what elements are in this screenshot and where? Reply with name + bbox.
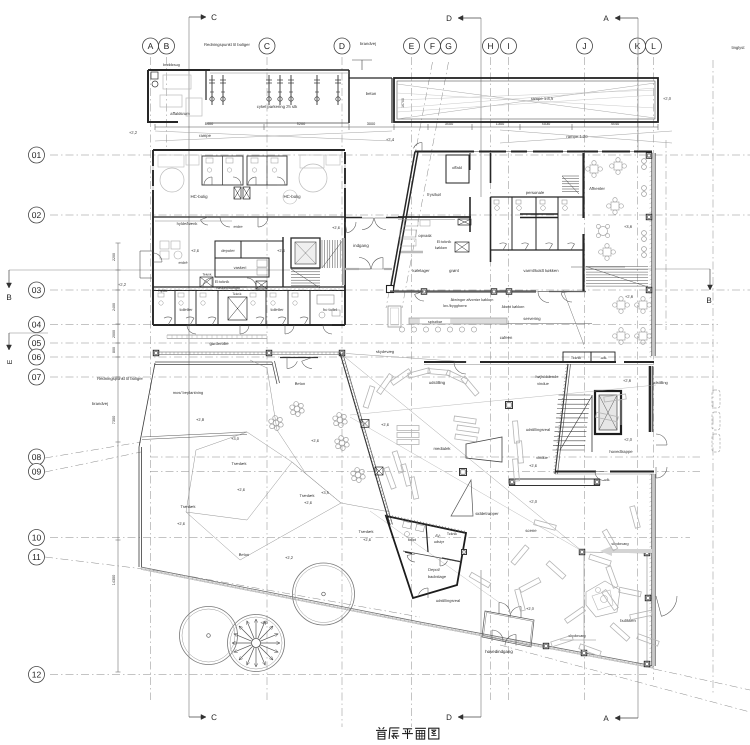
svg-text:E: E <box>409 41 415 51</box>
svg-text:hylde/bænk: hylde/bænk <box>177 221 198 226</box>
svg-text:Teknik: Teknik <box>571 356 581 360</box>
svg-text:udstillingsreal: udstillingsreal <box>436 598 460 603</box>
svg-text:5030: 5030 <box>542 122 550 126</box>
svg-text:skydevæg: skydevæg <box>568 634 585 638</box>
svg-text:Trædæk: Trædæk <box>359 529 374 534</box>
svg-text:frys/køl: frys/køl <box>427 192 441 197</box>
svg-text:Redningspunkt til boliger: Redningspunkt til boliger <box>204 42 250 47</box>
svg-text:Depot/: Depot/ <box>428 567 441 572</box>
svg-text:+2,2: +2,2 <box>129 130 138 135</box>
svg-text:entre: entre <box>233 224 243 229</box>
svg-text:cykel parkering 25 stk: cykel parkering 25 stk <box>257 104 298 109</box>
svg-text:02: 02 <box>32 210 42 220</box>
svg-text:Vaskeri/boliger: Vaskeri/boliger <box>216 286 242 290</box>
svg-text:03: 03 <box>32 285 42 295</box>
svg-text:grønt: grønt <box>449 268 460 273</box>
svg-text:+2,8: +2,8 <box>196 417 205 422</box>
svg-text:4540: 4540 <box>611 122 619 126</box>
svg-text:B: B <box>6 293 11 302</box>
svg-text:+2,0: +2,0 <box>663 96 672 101</box>
svg-text:10: 10 <box>32 533 42 543</box>
svg-text:14300: 14300 <box>112 575 116 586</box>
svg-text:garderobe: garderobe <box>209 341 229 346</box>
svg-text:backstage: backstage <box>428 574 447 579</box>
svg-text:+2,6: +2,6 <box>277 248 286 253</box>
svg-text:11: 11 <box>32 552 41 562</box>
svg-text:Beton: Beton <box>239 552 249 557</box>
svg-text:08: 08 <box>32 452 42 462</box>
svg-text:rampe 1:8,5: rampe 1:8,5 <box>531 96 554 101</box>
svg-text:+2,6: +2,6 <box>625 294 634 299</box>
svg-text:+2,2: +2,2 <box>118 282 127 287</box>
svg-text:C: C <box>264 41 270 51</box>
svg-text:D: D <box>446 14 452 23</box>
svg-text:offald: offald <box>452 165 462 170</box>
svg-text:+2,6: +2,6 <box>191 248 200 253</box>
svg-text:køkken: køkken <box>435 246 447 250</box>
svg-text:06: 06 <box>32 352 42 362</box>
svg-text:udstilling: udstilling <box>429 380 446 385</box>
svg-text:B: B <box>706 296 711 305</box>
svg-text:affaldsrum: affaldsrum <box>170 111 190 116</box>
svg-text:brandvej: brandvej <box>360 41 376 46</box>
svg-text:8400: 8400 <box>205 122 213 126</box>
svg-text:AV-: AV- <box>435 534 442 538</box>
svg-text:3500: 3500 <box>445 122 453 126</box>
svg-text:udstillingsreal: udstillingsreal <box>526 427 550 432</box>
svg-text:kølelager: kølelager <box>412 268 430 273</box>
svg-text:Teknik: Teknik <box>202 273 211 277</box>
svg-text:personale: personale <box>526 190 545 195</box>
svg-text:Trædæk: Trædæk <box>232 461 247 466</box>
svg-text:åbninger afventer køkken: åbninger afventer køkken <box>451 297 494 302</box>
svg-text:Trædæk: Trædæk <box>300 493 315 498</box>
svg-text:H: H <box>487 41 493 51</box>
svg-text:rampe: rampe <box>199 133 212 138</box>
svg-text:12: 12 <box>32 670 42 680</box>
svg-text:Afhenter: Afhenter <box>589 186 605 191</box>
svg-text:Teknik: Teknik <box>447 532 457 536</box>
svg-text:G: G <box>445 41 452 51</box>
svg-text:Trædæk: Trædæk <box>181 504 196 509</box>
svg-text:5200: 5200 <box>297 122 305 126</box>
svg-text:vaskeri: vaskeri <box>234 265 247 270</box>
svg-text:3000: 3000 <box>367 122 375 126</box>
svg-text:udstyr: udstyr <box>434 540 445 544</box>
svg-text:brandvej: brandvej <box>92 401 108 406</box>
svg-text:lev./byggherre: lev./byggherre <box>443 304 467 308</box>
svg-text:2400: 2400 <box>112 303 116 311</box>
svg-text:toiletter: toiletter <box>270 307 284 312</box>
svg-text:F: F <box>430 41 435 51</box>
svg-text:E: E <box>7 359 14 364</box>
svg-text:beton: beton <box>366 91 377 96</box>
svg-text:2200: 2200 <box>112 253 116 261</box>
svg-text:+2,6: +2,6 <box>311 438 320 443</box>
svg-text:04: 04 <box>32 320 42 330</box>
svg-text:+3,5: +3,5 <box>321 490 330 495</box>
svg-text:hc-toilet: hc-toilet <box>323 307 338 312</box>
svg-text:+2,6: +2,6 <box>332 225 341 230</box>
svg-text:07: 07 <box>32 372 42 382</box>
svg-text:+2,6: +2,6 <box>363 537 372 542</box>
svg-text:D: D <box>339 41 345 51</box>
svg-text:800: 800 <box>112 347 116 353</box>
svg-text:toilet: toilet <box>408 538 417 542</box>
svg-text:udstilling: udstilling <box>652 380 668 385</box>
svg-text:scene: scene <box>525 528 537 533</box>
svg-text:A: A <box>148 41 154 51</box>
svg-text:siddetrapper: siddetrapper <box>475 511 499 516</box>
svg-text:C: C <box>211 713 217 722</box>
svg-text:D: D <box>446 713 452 722</box>
svg-text:B: B <box>164 41 170 51</box>
svg-text:J: J <box>582 41 586 51</box>
svg-text:El-teknik: El-teknik <box>215 280 230 284</box>
svg-text:adk.: adk. <box>601 356 608 360</box>
svg-text:brøldesug: brøldesug <box>163 63 180 67</box>
svg-text:skydevæg: skydevæg <box>376 349 394 354</box>
svg-text:+2,0: +2,0 <box>260 621 268 625</box>
svg-text:HC-bolig: HC-bolig <box>190 194 208 199</box>
svg-text:1300: 1300 <box>496 122 504 126</box>
svg-text:+2,6: +2,6 <box>237 487 246 492</box>
svg-text:cafeen: cafeen <box>500 335 513 340</box>
svg-text:C: C <box>211 13 217 22</box>
svg-text:+2,0: +2,0 <box>624 437 633 442</box>
svg-text:7300: 7300 <box>112 416 116 424</box>
svg-text:+2,2: +2,2 <box>285 555 294 560</box>
svg-text:+2,6: +2,6 <box>623 378 632 383</box>
svg-text:+2,6: +2,6 <box>381 422 390 427</box>
svg-text:+2,0: +2,0 <box>529 499 538 504</box>
svg-text:+2,4: +2,4 <box>386 137 395 142</box>
svg-text:hovedtrappe: hovedtrappe <box>609 449 633 454</box>
svg-text:mos/ beplantning: mos/ beplantning <box>173 390 203 395</box>
svg-text:2000: 2000 <box>112 330 116 338</box>
svg-text:+2,6: +2,6 <box>304 500 313 505</box>
svg-text:depoter: depoter <box>221 248 235 253</box>
svg-text:vindue: vindue <box>537 381 550 386</box>
svg-text:hylde: hylde <box>158 289 167 293</box>
svg-text:mediatek: mediatek <box>434 446 452 451</box>
svg-text:varmt/koldt køkken: varmt/koldt køkken <box>523 268 559 273</box>
svg-text:16700: 16700 <box>401 98 405 108</box>
svg-text:hovedindgang: hovedindgang <box>485 649 513 654</box>
svg-text:HC-bolig: HC-bolig <box>283 194 301 199</box>
svg-text:I: I <box>507 41 509 51</box>
svg-text:El-teknik: El-teknik <box>437 240 452 244</box>
svg-text:L: L <box>651 41 656 51</box>
svg-text:højtsiddende: højtsiddende <box>536 374 560 379</box>
svg-text:spisebar: spisebar <box>428 320 443 324</box>
svg-text:+2,6: +2,6 <box>177 521 186 526</box>
svg-text:01: 01 <box>32 150 42 160</box>
svg-text:tinglyst: tinglyst <box>731 45 745 50</box>
svg-text:+2,0: +2,0 <box>526 606 535 611</box>
svg-text:+3,0: +3,0 <box>231 436 240 441</box>
svg-text:A: A <box>603 714 609 723</box>
svg-text:opvask: opvask <box>418 233 432 238</box>
svg-text:toiletter: toiletter <box>179 307 193 312</box>
svg-text:servering: servering <box>523 316 541 321</box>
svg-text:05: 05 <box>32 338 42 348</box>
svg-text:+3,6: +3,6 <box>624 224 633 229</box>
svg-text:+2,6: +2,6 <box>529 463 538 468</box>
svg-text:Beton: Beton <box>295 381 305 386</box>
svg-text:åbent køkken: åbent køkken <box>502 304 525 309</box>
svg-text:indgang: indgang <box>353 243 369 248</box>
svg-text:adk.: adk. <box>604 478 611 482</box>
svg-text:vindue: vindue <box>536 455 549 460</box>
svg-text:entré: entré <box>178 260 188 265</box>
svg-text:Teknik: Teknik <box>232 292 241 296</box>
svg-text:A: A <box>603 14 609 23</box>
svg-text:09: 09 <box>32 467 42 477</box>
